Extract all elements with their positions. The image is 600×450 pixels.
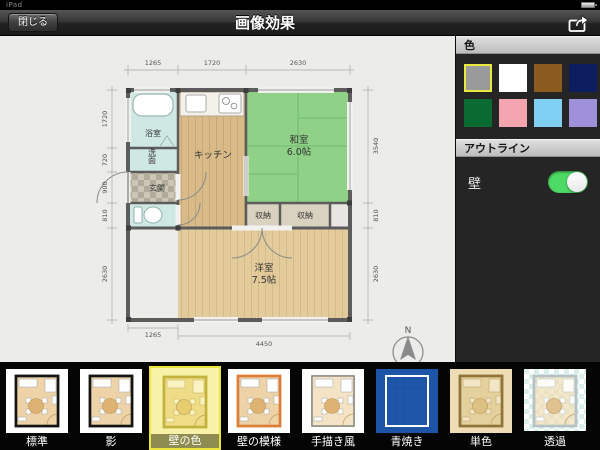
outline-section-header: アウトライン [456, 139, 600, 157]
color-swatch-navy[interactable] [569, 64, 597, 92]
effect-label: 影 [106, 435, 117, 448]
wall-outline-row: 壁 [456, 157, 600, 207]
color-swatch-light-blue[interactable] [534, 99, 562, 127]
effect-thumbnail [154, 370, 216, 432]
color-swatch-white[interactable] [499, 64, 527, 92]
effect-item-blueprint[interactable]: 青焼き [371, 366, 443, 450]
effect-thumbnail [376, 369, 438, 431]
effect-item-transparent[interactable]: 透過 [519, 366, 591, 450]
room-label-western-size: 7.5帖 [252, 274, 277, 286]
svg-text:720: 720 [101, 154, 109, 166]
room-label-washroom: 洗面 [148, 147, 157, 165]
svg-text:4450: 4450 [256, 340, 273, 348]
color-swatch-purple[interactable] [569, 99, 597, 127]
effect-thumbnail [80, 369, 142, 431]
room-label-bath: 浴室 [145, 128, 161, 138]
share-icon [565, 13, 591, 33]
color-swatch-grid [456, 54, 600, 139]
svg-text:3540: 3540 [372, 138, 380, 155]
svg-text:1265: 1265 [145, 331, 162, 339]
effect-thumbnail [228, 369, 290, 431]
floorplan-canvas: 浴室 洗面 玄関 キッチン 和室 6.0帖 収納 収納 洋室 7.5帖 1265… [0, 36, 455, 362]
color-swatch-pink[interactable] [499, 99, 527, 127]
effect-item-shadow[interactable]: 影 [75, 366, 147, 450]
effect-options-sidebar: 色 アウトライン 壁 [455, 36, 600, 362]
effect-thumbnail [524, 369, 586, 431]
compass: N [393, 326, 423, 362]
effect-label: 壁の模様 [237, 435, 281, 448]
svg-text:900: 900 [101, 181, 109, 193]
effect-label: 壁の色 [151, 434, 219, 448]
app-window: iPad 閉じる 画像効果 [0, 0, 600, 450]
room-label-closet2: 収納 [297, 210, 313, 220]
svg-text:1720: 1720 [204, 59, 221, 67]
effects-filmstrip: 標準 影 [0, 362, 600, 450]
color-swatch-green[interactable] [464, 99, 492, 127]
toggle-knob [567, 172, 587, 192]
room-label-japanese-size: 6.0帖 [287, 146, 312, 158]
room-label-closet1: 収納 [255, 210, 271, 220]
svg-text:2630: 2630 [101, 266, 109, 283]
svg-text:810: 810 [372, 209, 380, 221]
svg-text:1720: 1720 [101, 111, 109, 128]
svg-text:2630: 2630 [290, 59, 307, 67]
effect-item-hand-drawn[interactable]: 手描き風 [297, 366, 369, 450]
svg-text:2630: 2630 [372, 266, 380, 283]
svg-text:810: 810 [101, 209, 109, 221]
effect-label: 透過 [544, 435, 566, 448]
wall-toggle-label: 壁 [468, 173, 481, 192]
effect-label: 青焼き [391, 435, 424, 448]
carrier-label: iPad [6, 1, 23, 9]
share-button[interactable] [565, 13, 591, 33]
effect-thumbnail [302, 369, 364, 431]
battery-icon [581, 2, 595, 8]
effect-thumbnail [450, 369, 512, 431]
effect-item-monochrome[interactable]: 単色 [445, 366, 517, 450]
compass-n-label: N [405, 326, 412, 336]
svg-text:1265: 1265 [145, 59, 162, 67]
floorplan-drawing: 浴室 洗面 玄関 キッチン 和室 6.0帖 収納 収納 洋室 7.5帖 1265… [0, 36, 455, 362]
color-swatch-gray[interactable] [464, 64, 492, 92]
effect-item-standard[interactable]: 標準 [1, 366, 73, 450]
room-label-kitchen: キッチン [194, 150, 232, 161]
wall-toggle[interactable] [548, 171, 588, 193]
effect-label: 標準 [26, 435, 48, 448]
page-title: 画像効果 [0, 10, 530, 36]
room-label-western: 洋室 [254, 262, 273, 274]
room-label-japanese: 和室 [289, 134, 308, 146]
color-section-header: 色 [456, 36, 600, 54]
effect-thumbnail [6, 369, 68, 431]
effect-label: 手描き風 [311, 435, 355, 448]
effect-item-wall-pattern[interactable]: 壁の模様 [223, 366, 295, 450]
room-label-entrance: 玄関 [149, 183, 165, 193]
color-swatch-brown[interactable] [534, 64, 562, 92]
effect-item-wall-color[interactable]: 壁の色 [149, 366, 221, 450]
status-bar: iPad [0, 0, 600, 10]
nav-bar: 閉じる 画像効果 [0, 10, 600, 36]
effect-label: 単色 [470, 435, 492, 448]
rooms [128, 90, 350, 320]
